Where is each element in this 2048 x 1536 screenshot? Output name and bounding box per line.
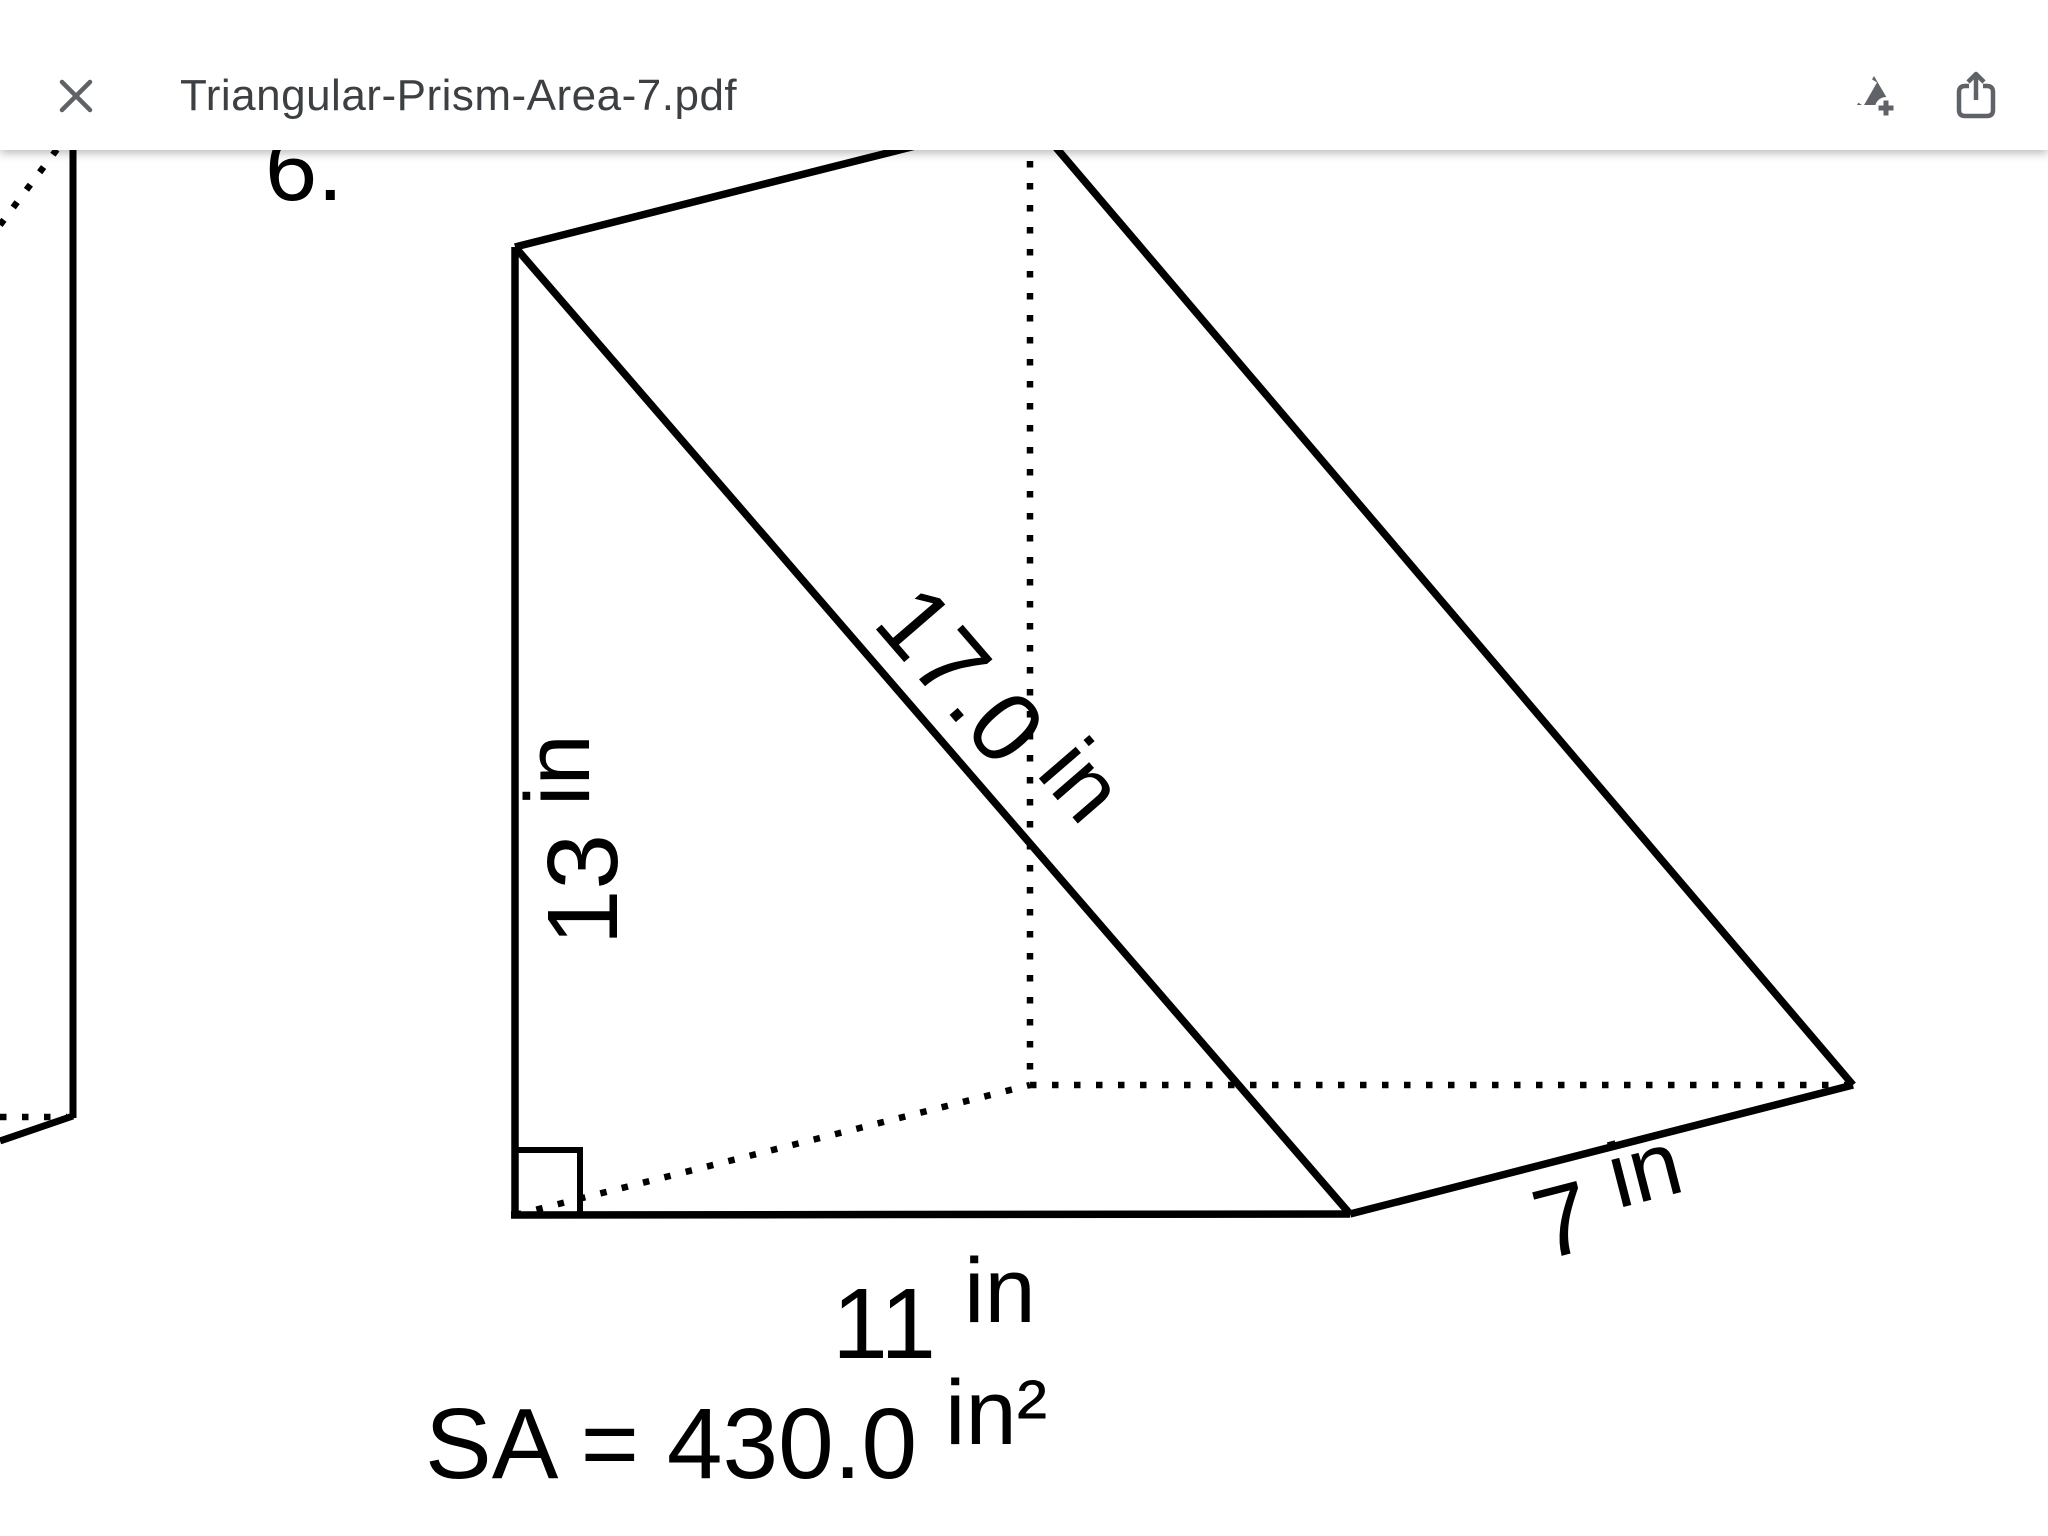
add-to-drive-icon [1848, 70, 1900, 122]
previous-problem-figure [0, 95, 73, 1141]
toolbar-actions [1848, 70, 2002, 122]
dimension-label-height: 13 in [507, 734, 639, 945]
pdf-viewer-screen: 6. 13 in 17.0 in 11 [0, 0, 2048, 1536]
base-value: 11 [832, 1268, 936, 1380]
surface-area-answer: SA = 430.0 in² [425, 1362, 1047, 1500]
height-unit: in [507, 734, 609, 806]
close-button[interactable] [50, 70, 102, 122]
prism-edge-back-hypotenuse [1030, 117, 1853, 1085]
add-to-drive-button[interactable] [1848, 70, 1900, 122]
depth-value: 7 [1522, 1159, 1604, 1281]
close-icon [54, 74, 98, 118]
pdf-page-content: 6. 13 in 17.0 in 11 [0, 0, 2048, 1536]
toolbar: Triangular-Prism-Area-7.pdf [0, 0, 2048, 150]
dimension-label-base: 11 in [832, 1240, 1035, 1380]
prism-edge-front-hypotenuse [515, 247, 1350, 1214]
hypotenuse-unit: in [1020, 720, 1144, 841]
document-title: Triangular-Prism-Area-7.pdf [180, 71, 1848, 121]
dimension-label-depth: 7 in [1516, 1111, 1700, 1281]
share-button[interactable] [1950, 70, 2002, 122]
height-value: 13 [527, 834, 639, 945]
surface-area-unit: in² [945, 1362, 1047, 1464]
share-icon [1950, 70, 2002, 122]
prism-edge-depth-bottom-left-dotted [515, 1085, 1030, 1215]
base-unit: in [964, 1240, 1036, 1342]
dimension-label-hypotenuse: 17.0 in [854, 553, 1143, 859]
surface-area-value: SA = 430.0 [425, 1388, 917, 1500]
prev-edge-depth-bottom [0, 1116, 73, 1141]
prism-edge-front-base [511, 1214, 1350, 1215]
right-angle-marker [515, 1150, 580, 1215]
triangular-prism-figure [511, 117, 1853, 1215]
